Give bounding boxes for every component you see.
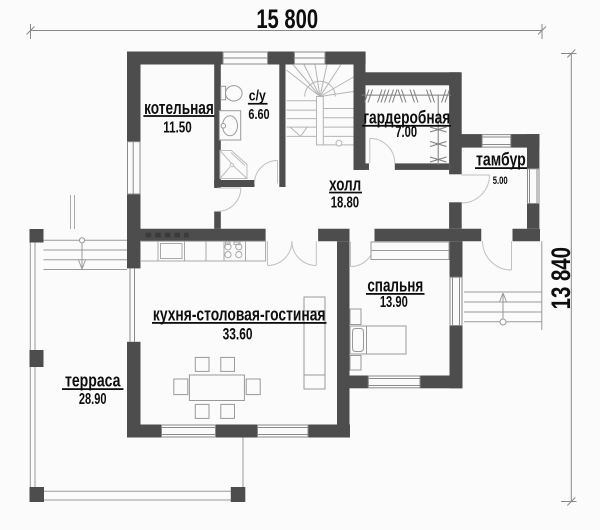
svg-text:тамбур: тамбур (476, 150, 526, 170)
svg-text:кухня-столовая-гостиная: кухня-столовая-гостиная (153, 304, 326, 324)
svg-text:13.90: 13.90 (380, 293, 408, 310)
svg-text:с/у: с/у (249, 87, 266, 103)
svg-text:33.60: 33.60 (223, 326, 253, 344)
svg-text:6.60: 6.60 (248, 106, 269, 123)
svg-text:28.90: 28.90 (79, 390, 107, 407)
svg-text:11.50: 11.50 (163, 119, 192, 136)
svg-text:терраса: терраса (65, 371, 121, 391)
svg-text:7.00: 7.00 (395, 123, 417, 140)
svg-text:18.80: 18.80 (331, 194, 359, 211)
svg-text:15 800: 15 800 (256, 5, 318, 34)
svg-text:5.00: 5.00 (493, 175, 508, 186)
svg-text:13 840: 13 840 (546, 247, 576, 309)
